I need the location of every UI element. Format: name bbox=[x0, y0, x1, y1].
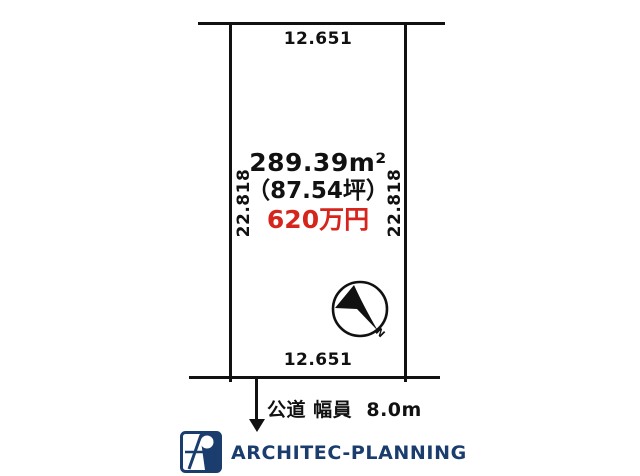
plot-info: 289.39m² （87.54坪） 620万円 bbox=[230, 149, 406, 234]
area-square-meters: 289.39m² bbox=[230, 149, 406, 177]
road-edge-line bbox=[189, 376, 440, 379]
land-plot-diagram: 12.651 12.651 22.818 22.818 289.39m² （87… bbox=[0, 0, 640, 476]
price-label: 620万円 bbox=[230, 205, 406, 234]
dimension-top: 12.651 bbox=[230, 29, 406, 49]
architec-planning-logo-icon bbox=[180, 431, 222, 473]
area-tsubo: （87.54坪） bbox=[230, 177, 406, 205]
road-label: 公道 幅員 8.0m bbox=[267, 395, 422, 422]
company-logo: ARCHITEC-PLANNING bbox=[180, 431, 467, 473]
north-compass-icon: N bbox=[329, 278, 391, 340]
road-arrow-stem bbox=[255, 378, 258, 420]
dimension-bottom: 12.651 bbox=[230, 350, 406, 370]
top-boundary-line bbox=[198, 22, 445, 25]
company-name: ARCHITEC-PLANNING bbox=[231, 440, 467, 464]
